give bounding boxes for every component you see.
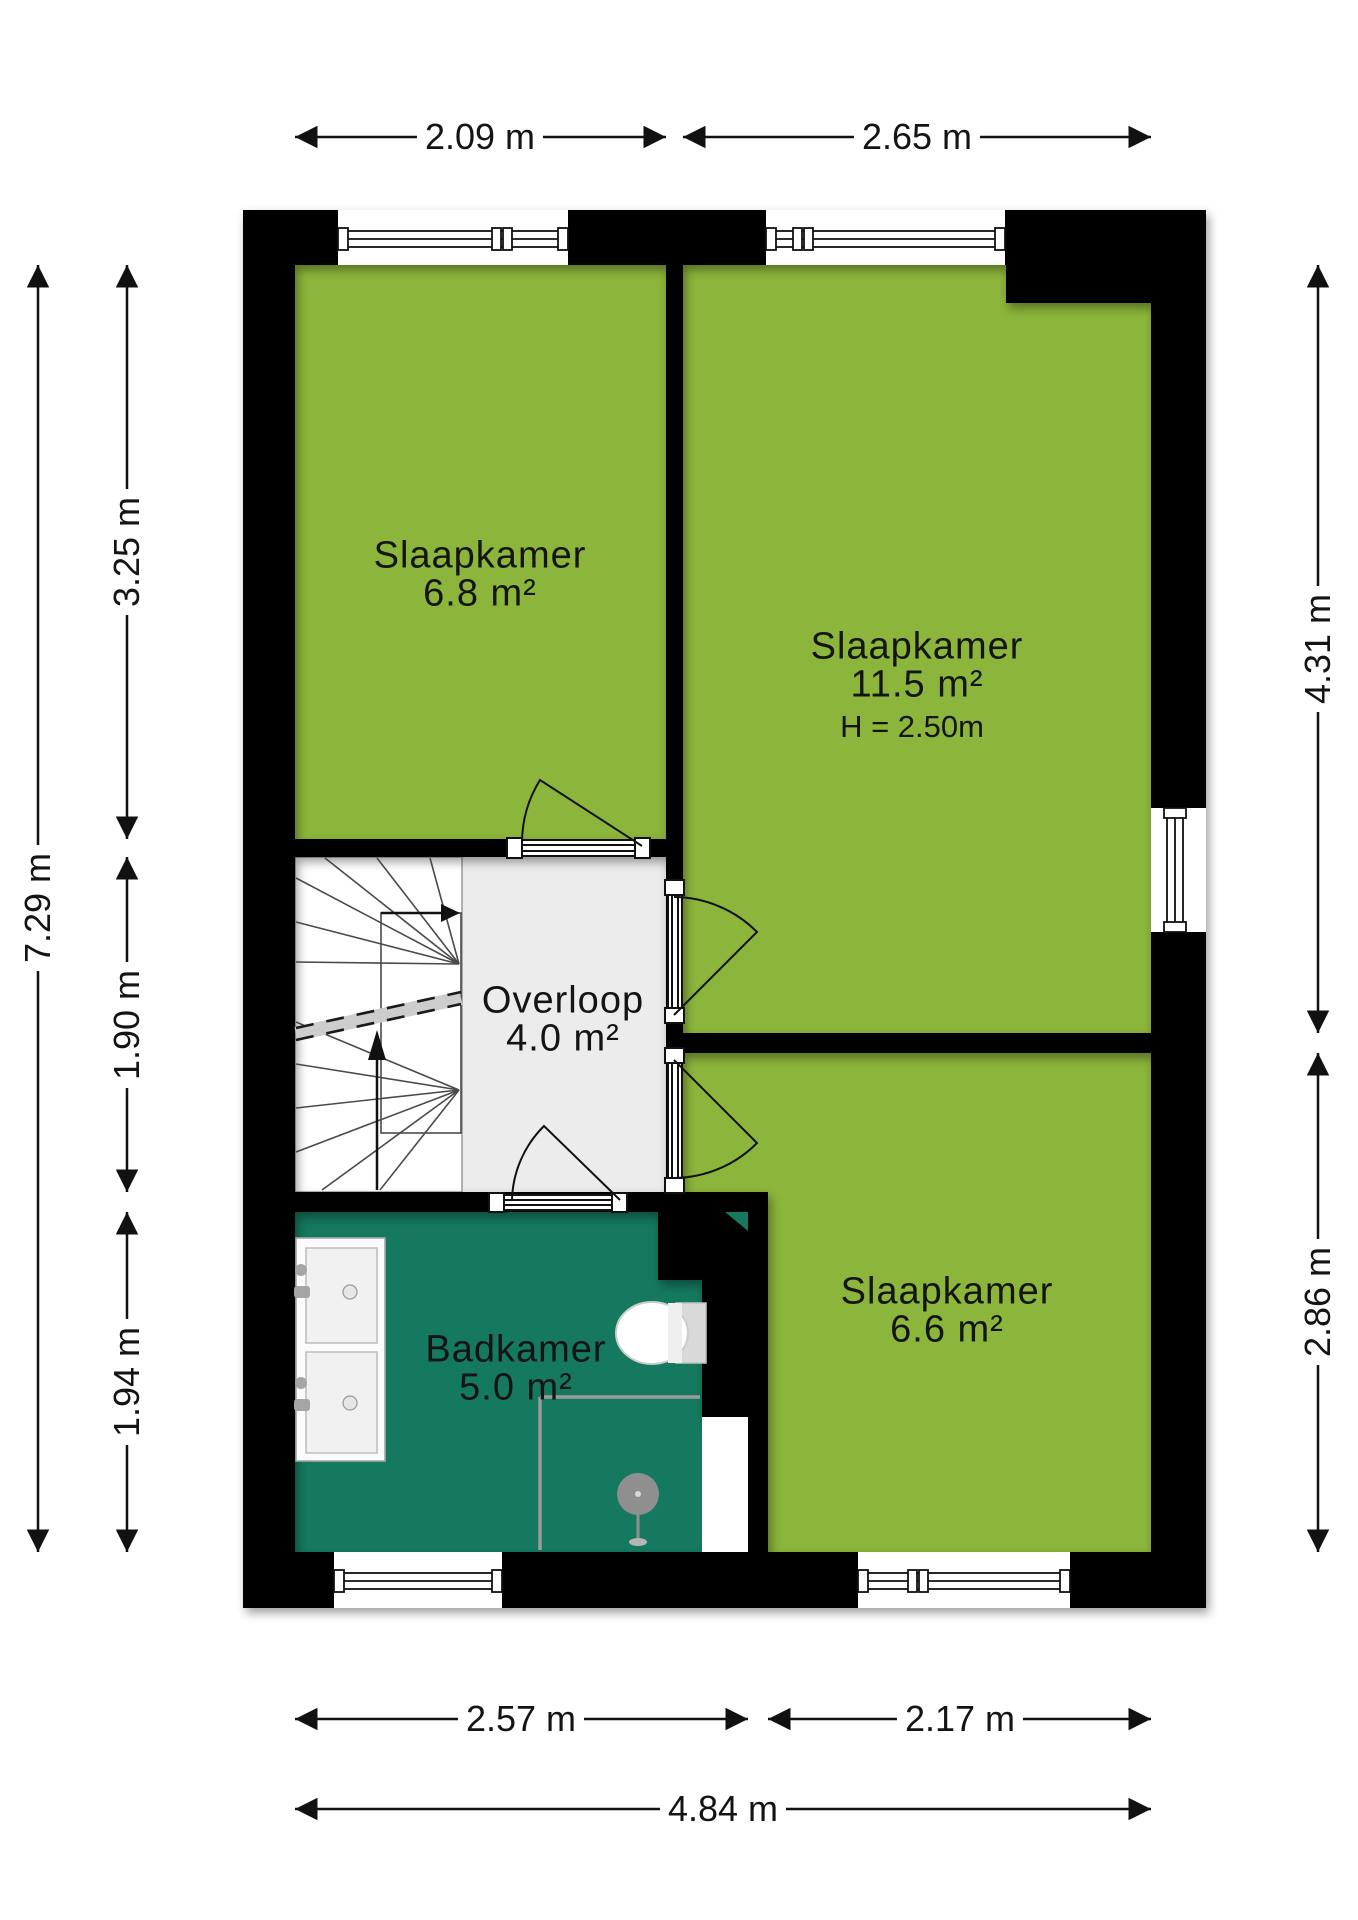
window-icon bbox=[766, 210, 1005, 265]
dim-left-2: 1.90 m bbox=[106, 962, 148, 1088]
window-icon bbox=[858, 1552, 1070, 1608]
room-area-overloop: 4.0 m² bbox=[506, 1018, 620, 1061]
dim-left-3: 1.94 m bbox=[106, 1319, 148, 1445]
room-label-overloop: Overloop bbox=[482, 980, 644, 1023]
room-label-badkamer: Badkamer bbox=[425, 1329, 606, 1372]
wall-niche bbox=[702, 1417, 748, 1552]
room-label-slaapkamer-3: Slaapkamer bbox=[841, 1271, 1054, 1314]
room-area-badkamer: 5.0 m² bbox=[459, 1367, 573, 1410]
room-label-slaapkamer-2: Slaapkamer bbox=[811, 626, 1024, 669]
dim-bottom-1: 2.57 m bbox=[458, 1698, 584, 1740]
dim-right-1: 4.31 m bbox=[1297, 586, 1339, 712]
room-area-slaapkamer-2: 11.5 m² bbox=[850, 664, 983, 707]
floor-plan-drawing bbox=[0, 0, 1358, 1920]
room-area-slaapkamer-1: 6.8 m² bbox=[423, 573, 537, 616]
window-icon bbox=[338, 210, 568, 265]
floor-plan: Slaapkamer 6.8 m² Slaapkamer 11.5 m² H =… bbox=[0, 0, 1358, 1920]
dim-bottom-2: 2.17 m bbox=[897, 1698, 1023, 1740]
dim-left-1: 3.25 m bbox=[106, 489, 148, 615]
dim-left-total: 7.29 m bbox=[17, 845, 59, 971]
toilet-icon bbox=[616, 1302, 706, 1364]
dim-bottom-total: 4.84 m bbox=[660, 1788, 786, 1830]
room-label-slaapkamer-1: Slaapkamer bbox=[374, 535, 587, 578]
dim-top-2: 2.65 m bbox=[854, 116, 980, 158]
room-height-slaapkamer-2: H = 2.50m bbox=[840, 709, 984, 745]
dim-right-2: 2.86 m bbox=[1297, 1239, 1339, 1365]
bathtub-vanity-icon bbox=[294, 1238, 385, 1461]
window-icon bbox=[1151, 808, 1206, 932]
dim-top-1: 2.09 m bbox=[417, 116, 543, 158]
window-icon bbox=[334, 1552, 502, 1608]
room-area-slaapkamer-3: 6.6 m² bbox=[890, 1309, 1004, 1352]
